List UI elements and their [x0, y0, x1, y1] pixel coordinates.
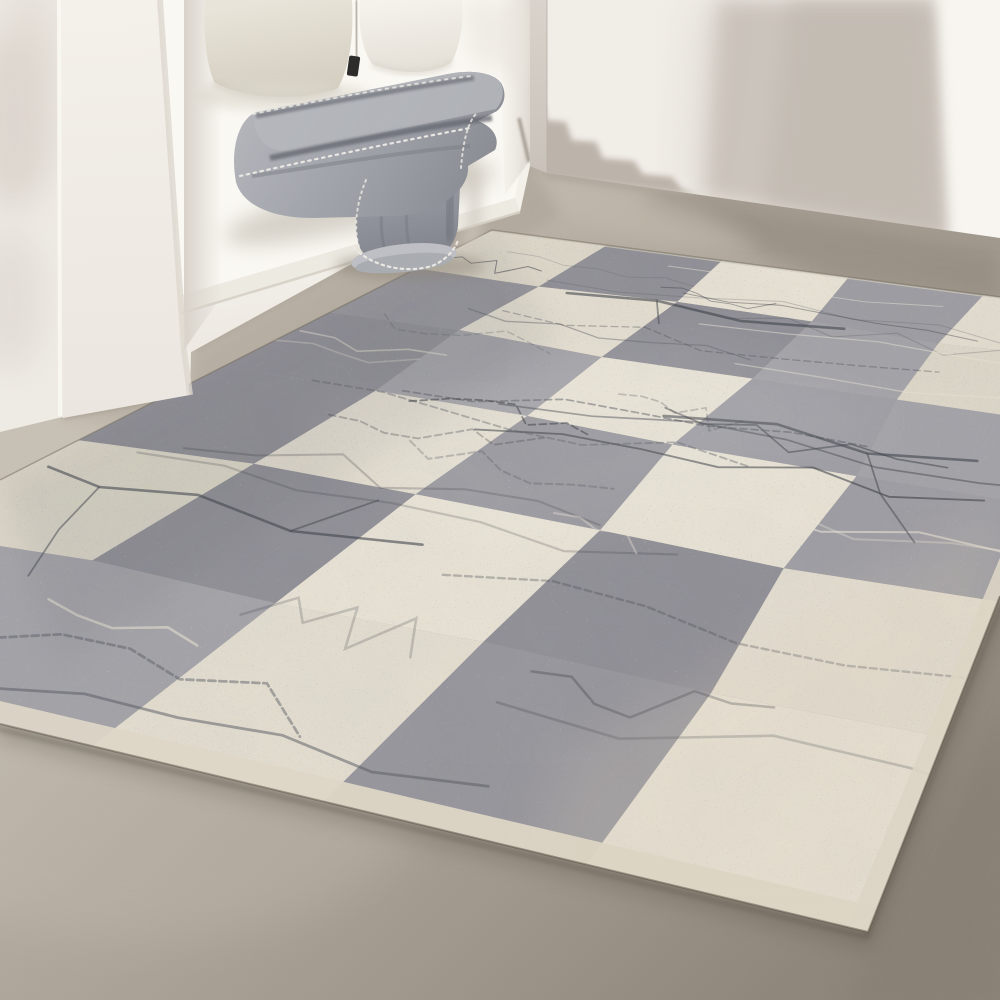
- pillow-right: [360, 0, 463, 72]
- scene: [0, 0, 1000, 1000]
- pillar-left-highlight: [59, 0, 60, 416]
- wall-shadow-core: [764, 0, 944, 240]
- room-photo: [0, 0, 1000, 1000]
- pillow-gap-seam: [356, 0, 357, 58]
- nook-return-wall: [530, 0, 547, 173]
